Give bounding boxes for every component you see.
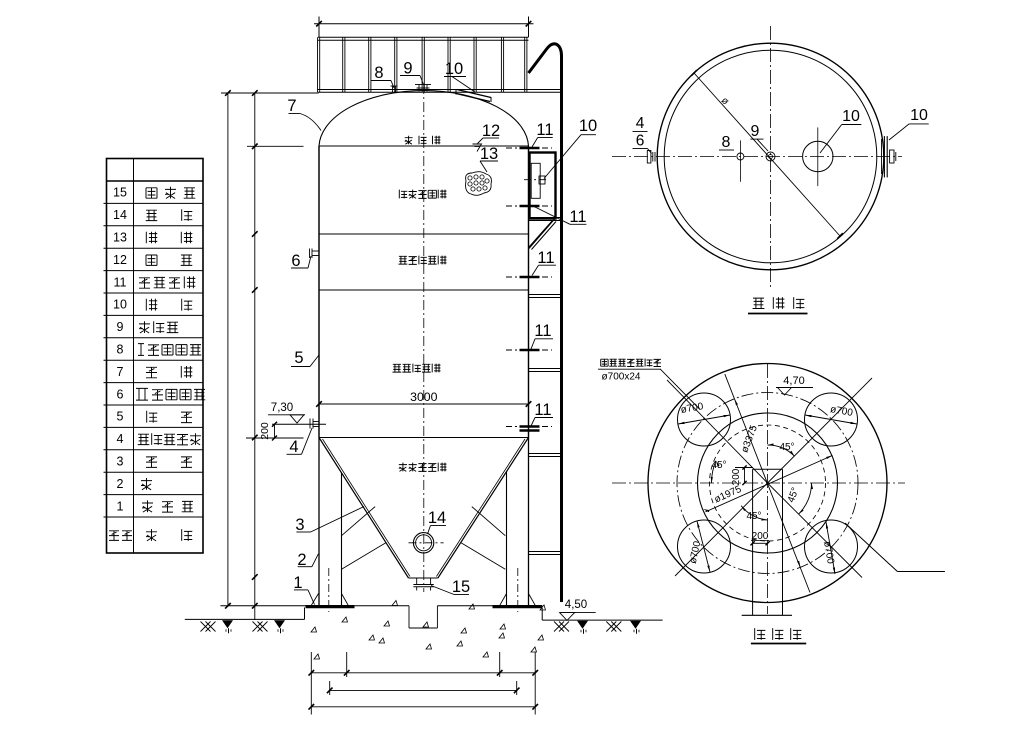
svg-text:200: 200 — [259, 422, 271, 440]
svg-text:4: 4 — [117, 432, 124, 446]
svg-text:4: 4 — [289, 438, 298, 456]
svg-text:3: 3 — [117, 455, 124, 469]
svg-text:6: 6 — [291, 252, 300, 270]
svg-text:11: 11 — [534, 401, 551, 419]
svg-text:12: 12 — [482, 122, 500, 140]
svg-text:7,30: 7,30 — [271, 402, 293, 414]
svg-text:4,50: 4,50 — [565, 599, 587, 611]
svg-text:11: 11 — [534, 322, 551, 340]
svg-text:6: 6 — [636, 133, 645, 150]
svg-text:10: 10 — [910, 107, 928, 124]
svg-text:10: 10 — [579, 117, 597, 135]
svg-text:8: 8 — [722, 134, 731, 151]
svg-text:15: 15 — [452, 578, 470, 596]
svg-text:1: 1 — [117, 499, 124, 513]
svg-text:3000: 3000 — [410, 390, 438, 404]
svg-text:9: 9 — [403, 60, 412, 78]
svg-text:7: 7 — [117, 365, 124, 379]
svg-text:13: 13 — [480, 145, 498, 163]
svg-text:11: 11 — [114, 275, 127, 289]
svg-text:15: 15 — [113, 186, 127, 200]
svg-text:200: 200 — [731, 468, 742, 485]
svg-text:3: 3 — [295, 516, 304, 534]
svg-text:8: 8 — [374, 64, 383, 82]
svg-text:1: 1 — [293, 574, 302, 592]
svg-text:9: 9 — [117, 320, 124, 334]
svg-text:10: 10 — [113, 298, 127, 312]
svg-text:13: 13 — [113, 231, 127, 245]
svg-text:11: 11 — [569, 208, 586, 226]
svg-text:10: 10 — [445, 60, 463, 78]
svg-text:11: 11 — [536, 121, 553, 139]
svg-text:ø700x24: ø700x24 — [602, 372, 641, 383]
svg-text:11: 11 — [537, 249, 554, 267]
svg-text:12: 12 — [113, 253, 127, 267]
svg-text:2: 2 — [117, 477, 124, 491]
svg-text:9: 9 — [751, 123, 760, 140]
svg-text:5: 5 — [294, 349, 303, 367]
svg-text:7: 7 — [287, 97, 296, 115]
svg-text:10: 10 — [842, 108, 860, 125]
svg-text:5: 5 — [117, 410, 124, 424]
svg-text:14: 14 — [428, 509, 446, 527]
svg-text:14: 14 — [113, 208, 127, 222]
svg-text:4: 4 — [636, 115, 645, 132]
svg-text:6: 6 — [117, 387, 124, 401]
svg-text:4,70: 4,70 — [783, 375, 804, 387]
svg-text:8: 8 — [117, 343, 124, 357]
